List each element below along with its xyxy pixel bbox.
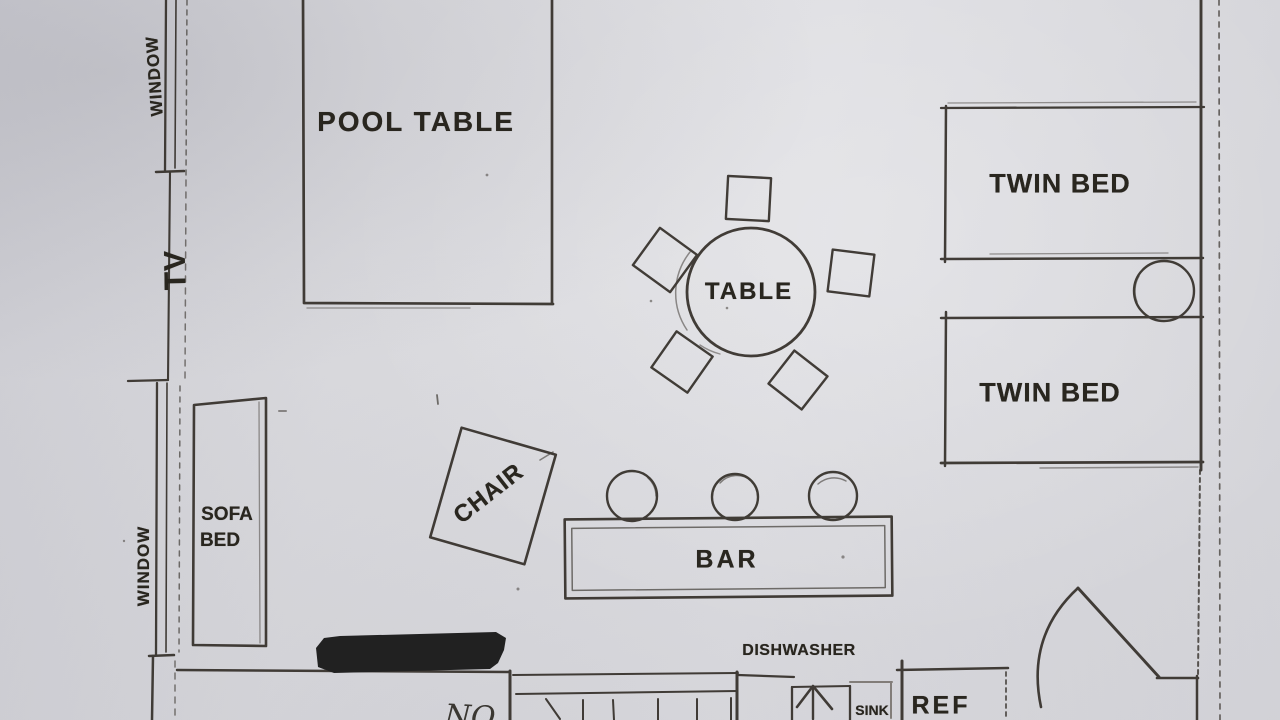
dining-chair bbox=[769, 351, 828, 410]
ref-label: REF bbox=[912, 692, 971, 720]
left-wall-bottom bbox=[152, 656, 175, 720]
floor-plan-linework bbox=[0, 0, 1280, 720]
window-bottom-label: WINDOW bbox=[134, 526, 154, 607]
paper-specks bbox=[123, 174, 845, 591]
window-symbol-bottom bbox=[149, 383, 180, 656]
kitchen-counter bbox=[513, 672, 738, 720]
twin-bed-bottom-label: TWIN BED bbox=[979, 378, 1120, 409]
pool-table-outline bbox=[303, 0, 553, 308]
redaction-bar bbox=[316, 632, 506, 673]
floor-plan-sketch: WINDOW TV WINDOW POOL TABLE TABLE CHAIR … bbox=[0, 0, 1280, 720]
dining-chair bbox=[651, 331, 712, 392]
sofa-bed-label-line2: BED bbox=[200, 530, 240, 552]
dining-chair bbox=[828, 250, 875, 297]
door-swing bbox=[1038, 588, 1159, 707]
door-leaf bbox=[1078, 588, 1159, 677]
sofa-bed-label-line1: SOFA bbox=[201, 504, 253, 526]
bar-stool bbox=[809, 472, 857, 520]
pool-table-label: POOL TABLE bbox=[317, 106, 515, 138]
nightstand-circle bbox=[1134, 261, 1194, 321]
door-arc bbox=[1038, 588, 1078, 707]
sink-label: SINK bbox=[855, 702, 888, 718]
twin-bed-top-label: TWIN BED bbox=[989, 169, 1130, 200]
tv-label: TV bbox=[159, 250, 194, 291]
bar-label: BAR bbox=[695, 546, 758, 575]
dishwasher-box bbox=[792, 686, 850, 720]
dining-table-label: TABLE bbox=[705, 278, 793, 306]
dishwasher-label: DISHWASHER bbox=[742, 642, 855, 660]
dishwasher-arrow-icon bbox=[797, 686, 832, 719]
handwritten-note: NO bbox=[444, 698, 497, 720]
dining-chair bbox=[726, 176, 771, 221]
bar-stools bbox=[607, 471, 857, 521]
